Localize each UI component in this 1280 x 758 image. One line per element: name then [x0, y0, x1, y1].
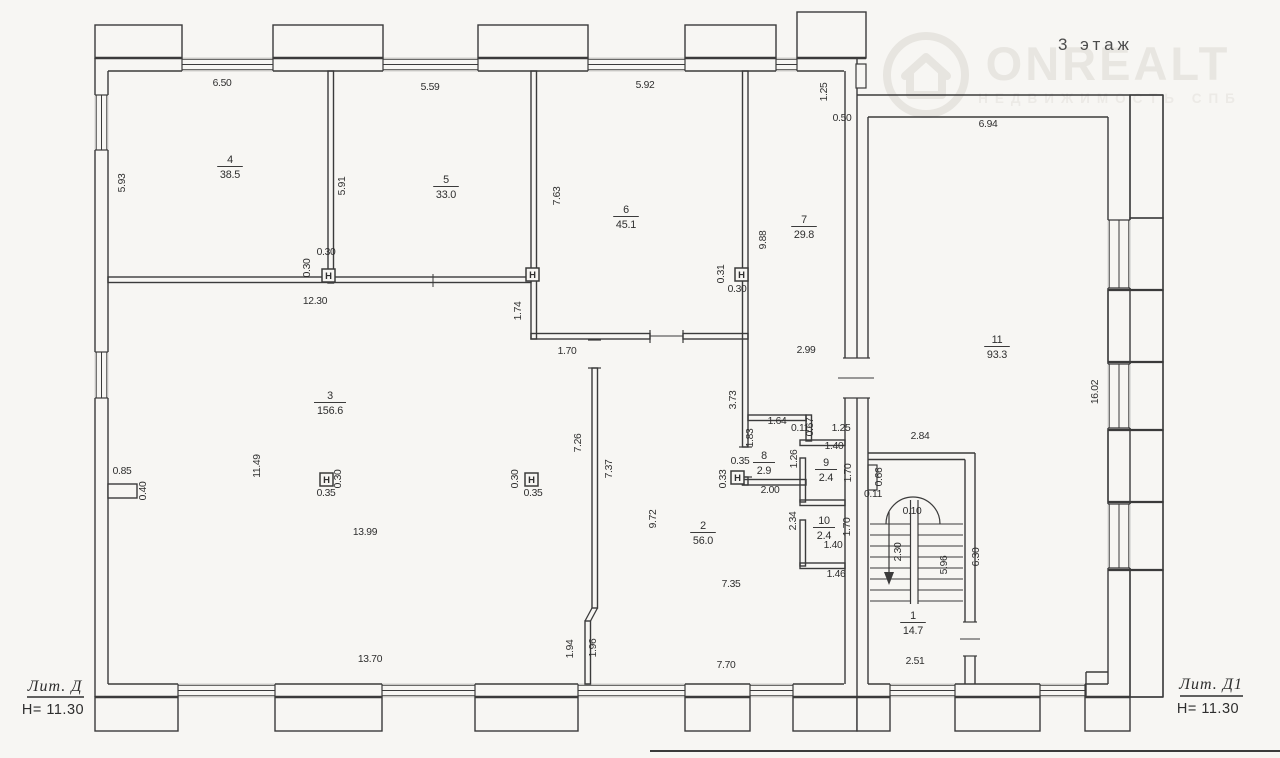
dimension-label: 1.74 [513, 301, 524, 320]
room-area: 93.3 [987, 349, 1007, 361]
dimension-label: 3.73 [728, 390, 739, 409]
dimension-label: 7.26 [573, 433, 584, 452]
wall-pier [108, 484, 137, 498]
wall-rect [800, 520, 806, 566]
dimension-label: 6.50 [213, 78, 232, 89]
room-area: 156.6 [317, 405, 343, 417]
pilaster-block [685, 25, 776, 58]
pilaster-block [955, 697, 1040, 731]
dimension-label: 0.67 [805, 417, 816, 436]
room-number: 4 [227, 154, 233, 166]
dimension-label: 0.50 [833, 113, 852, 124]
dimension-label: 0.30 [302, 258, 313, 277]
room-number: 9 [823, 457, 829, 469]
column-symbol: H [325, 271, 332, 282]
dimension-label: 1.70 [558, 346, 577, 357]
dimension-label: 2.00 [761, 485, 780, 496]
room-number: 11 [992, 334, 1003, 346]
room-number: 1 [910, 610, 916, 622]
wall-rect [800, 563, 845, 569]
dimension-label: 1.70 [842, 517, 853, 536]
dimension-label: 5.96 [939, 555, 950, 574]
pilaster-block [685, 697, 750, 731]
dimension-label: 2.34 [788, 511, 799, 530]
dimension-label: 0.66 [874, 467, 885, 486]
wall-rect [1130, 95, 1163, 218]
room-area: 29.8 [794, 229, 814, 241]
room-number: 2 [700, 520, 706, 532]
dimension-label: 0.30 [333, 469, 344, 488]
dimension-label: 1.94 [565, 639, 576, 658]
wall-rect [531, 71, 537, 339]
dimension-label: 7.70 [717, 660, 736, 671]
room-area: 14.7 [903, 625, 923, 637]
legend-left: Лит. Д Н= 11.30 [22, 678, 84, 718]
room-area: 38.5 [220, 169, 240, 181]
pilaster-block [797, 12, 866, 58]
dimension-label: 9.72 [648, 509, 659, 528]
corner-step [856, 64, 866, 88]
dimension-label: 0.40 [138, 481, 149, 500]
dimension-label: 1.25 [832, 423, 851, 434]
room-number: 3 [327, 390, 333, 402]
pilaster-block [95, 25, 182, 58]
pilaster-block [793, 697, 857, 731]
dimension-label: 1.26 [789, 449, 800, 468]
room-number: 5 [443, 174, 449, 186]
wall-rect [1130, 502, 1163, 570]
column-symbol: H [734, 473, 741, 484]
dimension-label: 0.10 [903, 506, 922, 517]
column-symbol: H [529, 270, 536, 281]
dimension-label: 11.49 [252, 454, 263, 478]
wall-jog [585, 608, 598, 621]
room-number: 10 [818, 515, 830, 527]
watermark-house-icon [887, 36, 965, 114]
dimension-label: 2.30 [893, 542, 904, 561]
column-symbol: H [738, 270, 745, 281]
dimension-label: 13.70 [358, 654, 383, 665]
pilaster-block [478, 25, 588, 58]
dimension-label: 12.30 [303, 296, 328, 307]
floor-plan-drawing: ONREALT НЕДВИЖИМОСТЬ СПБ 6.505.595.921.2… [0, 0, 1280, 758]
pilaster-block [273, 25, 383, 58]
dimension-label: 0.11 [864, 489, 883, 500]
room-number: 6 [623, 204, 629, 216]
wall-rect [800, 500, 845, 506]
wall-rect [1130, 362, 1163, 430]
dimension-label: 0.35 [524, 488, 543, 499]
column-symbol: H [528, 475, 535, 486]
wall-rect [1130, 570, 1163, 697]
dimension-label: 13.99 [353, 527, 378, 538]
dimension-label: 2.51 [906, 656, 925, 667]
dimension-label: 1.64 [768, 416, 787, 427]
dimension-label: 7.35 [722, 579, 741, 590]
legend-left-height: Н= 11.30 [22, 702, 84, 718]
wall-rect [1108, 430, 1163, 502]
dimension-label: 16.02 [1090, 379, 1101, 404]
legend-right: Лит. Д1 Н= 11.30 [1177, 676, 1243, 717]
dimension-label: 6.30 [971, 547, 982, 566]
dimension-label: 1.25 [819, 82, 830, 101]
pilaster-block [95, 697, 178, 731]
room-number: 7 [801, 214, 807, 226]
floor-title: 3 этаж [1058, 35, 1133, 54]
column-symbol: H [323, 475, 330, 486]
wall-rect [683, 334, 748, 340]
room-area: 45.1 [616, 219, 636, 231]
dimension-label: 0.35 [731, 456, 750, 467]
dimension-label: 0.35 [317, 488, 336, 499]
dimension-label: 9.88 [758, 230, 769, 249]
dimension-label: 0.30 [510, 469, 521, 488]
wall-rect [531, 334, 650, 340]
labels: 6.505.595.921.250.506.945.935.917.639.88… [113, 78, 1101, 671]
dimension-label: 0.30 [317, 247, 336, 258]
dimension-label: 7.63 [552, 186, 563, 205]
dimension-label: 5.93 [117, 173, 128, 192]
room-number: 8 [761, 450, 767, 462]
legend-left-lit: Лит. Д [27, 678, 83, 695]
dimension-label: 2.99 [797, 345, 816, 356]
dimension-label: 1.83 [745, 428, 756, 447]
pilaster-block [1085, 697, 1130, 731]
wall-rect [592, 368, 598, 608]
dimension-label: 1.96 [588, 638, 599, 657]
legend-right-lit: Лит. Д1 [1178, 676, 1243, 693]
floor-plan-page: ONREALT НЕДВИЖИМОСТЬ СПБ 6.505.595.921.2… [0, 0, 1280, 758]
dimension-label: 2.84 [911, 431, 930, 442]
wall-rect [1130, 218, 1163, 290]
dimension-label: 1.70 [843, 463, 854, 482]
legend-right-height: Н= 11.30 [1177, 701, 1239, 717]
wall-rect [743, 71, 749, 447]
dimension-label: 1.46 [827, 569, 846, 580]
room-area: 33.0 [436, 189, 456, 201]
dimension-label: 6.94 [979, 119, 998, 130]
dimension-label: 5.91 [337, 176, 348, 195]
dimension-label: 7.37 [604, 459, 615, 478]
wall-rect [108, 277, 531, 283]
room-area: 56.0 [693, 535, 713, 547]
dimension-label: 0.31 [716, 264, 727, 283]
room-area: 2.9 [757, 465, 772, 477]
pilaster-block [275, 697, 382, 731]
walls [94, 12, 1163, 731]
watermark-tagline: НЕДВИЖИМОСТЬ СПБ [978, 91, 1242, 106]
pilaster-block [857, 697, 890, 731]
room-area: 2.4 [819, 472, 834, 484]
dimension-label: 5.59 [421, 82, 440, 93]
pilaster-block [475, 697, 578, 731]
dimension-label: 0.30 [728, 284, 747, 295]
dimension-label: 1.40 [825, 441, 844, 452]
dimension-label: 5.92 [636, 80, 655, 91]
dimension-label: 0.85 [113, 466, 132, 477]
dimension-label: 0.33 [718, 469, 729, 488]
wall-rect [1108, 290, 1163, 362]
room-area: 2.4 [817, 530, 832, 542]
